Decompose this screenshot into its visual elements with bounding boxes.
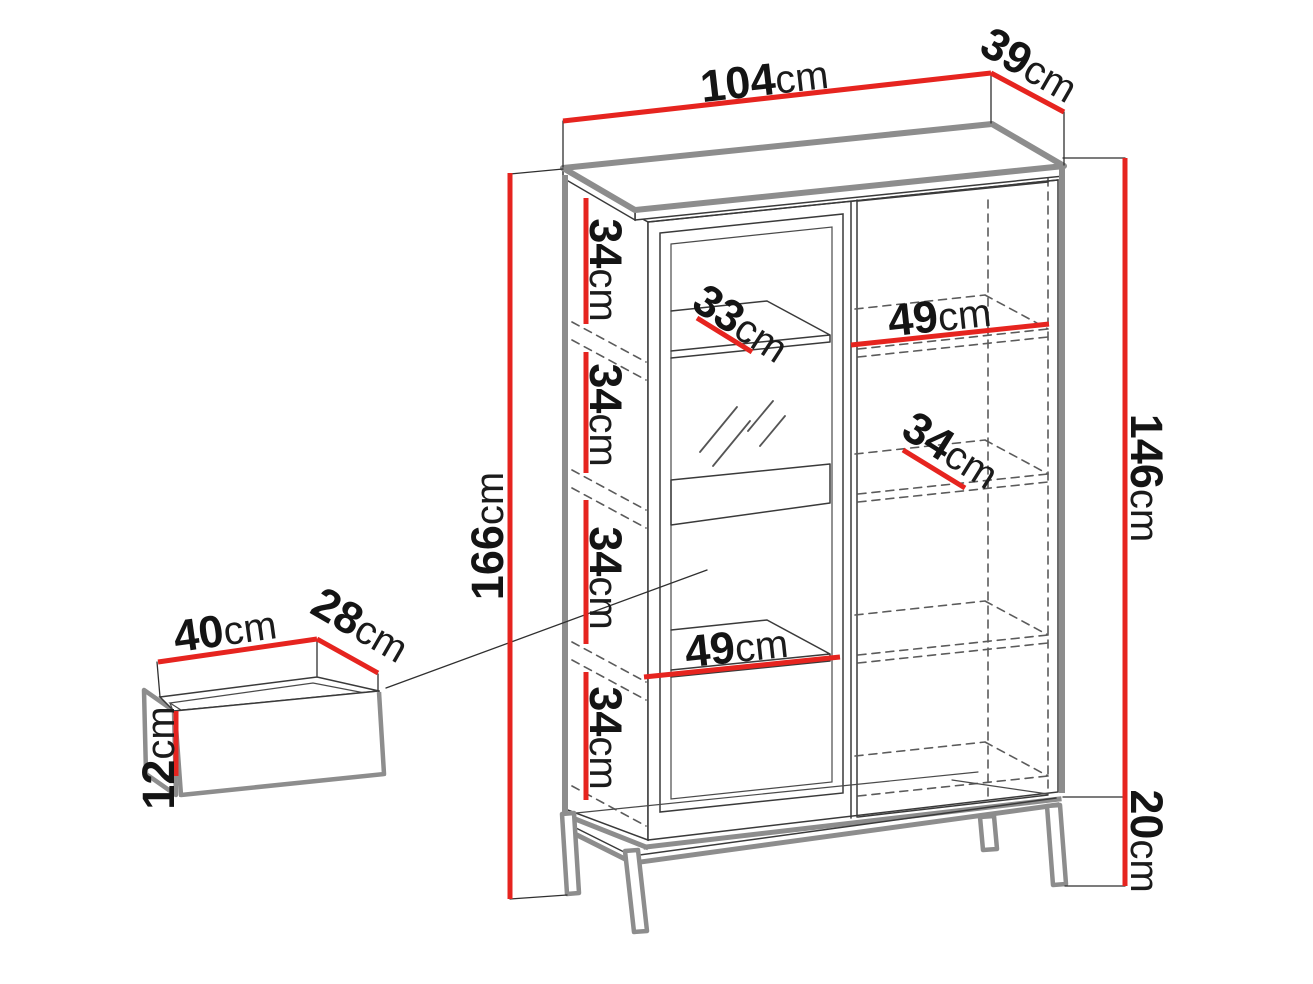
furniture-dimension-diagram: 104cm 39cm 166cm 146cm 20cm 34cm 34cm 34… — [0, 0, 1313, 984]
dim-body-height-label: 146cm — [1121, 414, 1172, 542]
dim-shelf-gap-4-label: 34cm — [580, 686, 631, 789]
cabinet-body — [565, 177, 1058, 840]
dim-depth-label: 39cm — [972, 17, 1087, 113]
dim-drawer-depth-label: 28cm — [303, 577, 418, 673]
dim-leg-height-label: 20cm — [1121, 789, 1172, 892]
dim-drawer-width-label: 40cm — [170, 597, 279, 662]
back-left-leg — [562, 813, 579, 894]
dim-shelf-gap-2-label: 34cm — [580, 363, 631, 466]
dim-shelf-gap-3-label: 34cm — [580, 526, 631, 629]
dim-width-label: 104cm — [698, 47, 831, 112]
diagram-page: 104cm 39cm 166cm 146cm 20cm 34cm 34cm 34… — [0, 0, 1313, 984]
dim-shelf-gap-1-label: 34cm — [580, 218, 631, 321]
front-right-leg — [1047, 805, 1066, 885]
back-right-leg — [980, 816, 997, 850]
dim-total-height-label: 166cm — [462, 472, 513, 600]
dim-drawer-height-label: 12cm — [133, 706, 184, 809]
